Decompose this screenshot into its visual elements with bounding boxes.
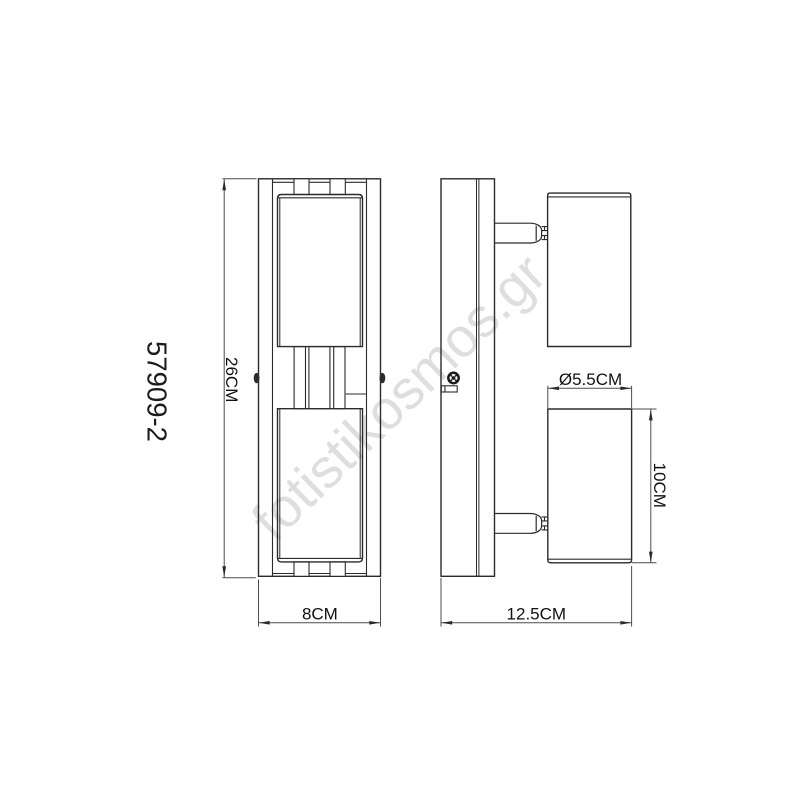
svg-text:Ø5.5CM: Ø5.5CM xyxy=(559,370,622,389)
svg-text:26CM: 26CM xyxy=(222,357,241,402)
svg-text:10CM: 10CM xyxy=(650,463,669,508)
svg-text:8CM: 8CM xyxy=(302,605,338,624)
svg-text:fotistikosmos.gr: fotistikosmos.gr xyxy=(240,242,558,552)
svg-text:57909-2: 57909-2 xyxy=(142,341,173,442)
svg-text:12.5CM: 12.5CM xyxy=(507,605,567,624)
